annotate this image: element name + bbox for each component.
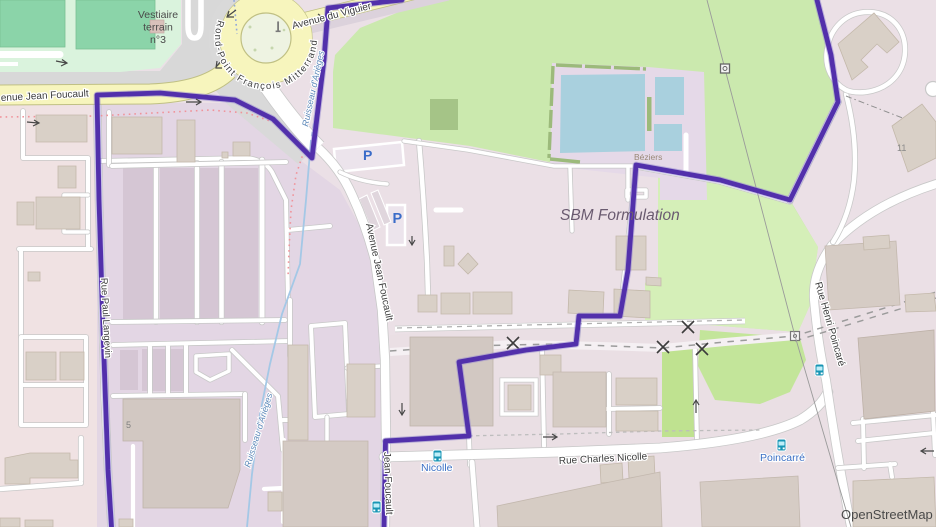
svg-text:5: 5: [126, 420, 131, 430]
svg-text:Vestiaire: Vestiaire: [138, 9, 178, 21]
svg-text:P: P: [393, 211, 403, 227]
svg-text:Poincarré: Poincarré: [760, 452, 805, 464]
svg-text:n°3: n°3: [150, 34, 166, 46]
svg-text:SBM Formulation: SBM Formulation: [560, 207, 680, 224]
svg-text:Béziers: Béziers: [634, 152, 662, 162]
svg-text:P: P: [363, 147, 372, 163]
svg-text:terrain: terrain: [143, 22, 173, 34]
svg-text:Nicolle: Nicolle: [421, 462, 453, 474]
svg-text:11: 11: [897, 143, 906, 153]
svg-text:OpenStreetMap: OpenStreetMap: [841, 507, 933, 522]
svg-text:Jean Foucault: Jean Foucault: [381, 452, 394, 515]
